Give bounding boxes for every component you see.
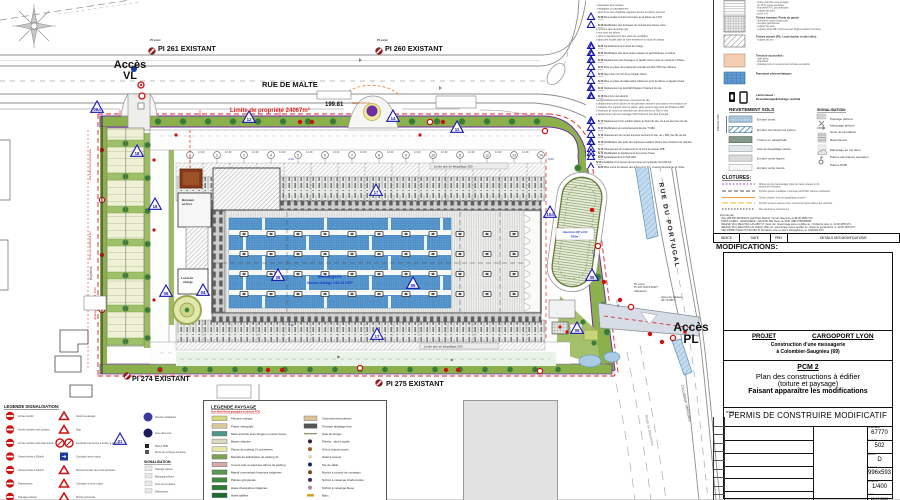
svg-text:N 29 Modification des fourreau: N 29 Modification des fourreaux du conce… [598, 24, 667, 27]
svg-text:Portillon et pieux sauterie te: Portillon et pieux sauterie tenue monume… [759, 202, 833, 205]
svg-text:12.30: 12.30 [225, 150, 232, 154]
svg-text:charge: charge [183, 280, 193, 284]
svg-text:12.30: 12.30 [468, 150, 475, 154]
svg-text:vertical très verticaux: vertical très verticaux [759, 186, 781, 189]
svg-text:Lim.6.00 recul construction: Lim.6.00 recul construction [88, 148, 92, 180]
svg-text:Ralentisseur: Ralentisseur [830, 138, 847, 142]
svg-text:N 05 Installation d'un auvent: N 05 Installation d'un auvent qui se tro… [596, 161, 672, 164]
svg-text:Panneaux photovoltaïques: Panneaux photovoltaïques [756, 72, 792, 76]
svg-text:Hôtel à insecte: Hôtel à insecte [322, 455, 342, 459]
svg-text:Borne de recharge électrique: Borne de recharge électrique [155, 451, 187, 454]
svg-text:12.30: 12.30 [441, 150, 448, 154]
svg-text:N 15 Abaissement de murets ann: N 15 Abaissement de murets annexes au No… [598, 134, 687, 137]
svg-text:N 07 Agrandissement du hall VR: N 07 Agrandissement du hall VRD [598, 156, 636, 159]
svg-text:Toiture auvent (PS, Local dock: Toiture auvent (PS, Local docker et abri… [756, 35, 818, 39]
svg-text:5: 5 [297, 154, 299, 158]
svg-text:- étanchéité PVC gris anthraci: - étanchéité PVC gris anthracite [756, 7, 789, 10]
svg-text:12.30: 12.30 [387, 150, 394, 154]
svg-text:rétention EP et EI: rétention EP et EI [563, 230, 588, 234]
svg-text:14: 14 [539, 154, 543, 158]
svg-text:Vitesse limitée à 30km/h: Vitesse limitée à 30km/h [18, 456, 45, 459]
svg-text:Enrobé voirie lourde: Enrobé voirie lourde [757, 166, 785, 170]
svg-text:Passage piétons: Passage piétons [830, 117, 853, 121]
svg-text:08: 08 [276, 275, 281, 280]
svg-text:05: 05 [411, 283, 416, 288]
svg-text:Clôture de type barreaudage ri: Clôture de type barreaudage rigide de mé… [759, 183, 820, 186]
svg-text:06: 06 [164, 291, 169, 296]
svg-text:N 23 Mise en place de balancel: N 23 Mise en place de balancelles inféri… [598, 80, 684, 83]
svg-text:N 10 Changement du revêtement: N 10 Changement du revêtement de la Cour… [598, 148, 665, 151]
svg-text:ESPACE VRD: ESPACE VRD [716, 114, 720, 131]
svg-text:Route de Marennes: Route de Marennes [644, 414, 655, 446]
svg-text:05: 05 [590, 275, 595, 280]
svg-text:4.10: 4.10 [288, 323, 294, 327]
svg-text:17: 17 [374, 190, 379, 195]
svg-text:- de 40 de pente membrane: - de 40 de pente membrane [756, 4, 785, 7]
svg-text:Terrasse platelage bois: Terrasse platelage bois [322, 424, 352, 428]
svg-text:Nichoir à colonie de moineaux: Nichoir à colonie de moineaux [322, 471, 361, 475]
svg-text:SECURISATION: SECURISATION [352, 102, 370, 105]
svg-text:Gîte à chauve-souris: Gîte à chauve-souris [322, 447, 349, 451]
svg-text:en R+1: en R+1 [182, 202, 192, 206]
svg-text:Terrasse accessible :: Terrasse accessible : [756, 54, 784, 58]
svg-text:Arrivée interdit: Arrivée interdit [18, 415, 34, 418]
svg-text:13: 13 [512, 154, 516, 158]
svg-text:12.30: 12.30 [522, 150, 529, 154]
svg-text:783m³: 783m³ [571, 235, 580, 239]
svg-text:10a: 10a [546, 212, 554, 217]
svg-text:12.30: 12.30 [198, 150, 205, 154]
svg-text:- platelage bois en recouvreme: - platelage bois en recouvrement terrass… [756, 63, 810, 66]
svg-text:Arrivée interdite sauf poids l: Arrivée interdite sauf poids lourds [18, 442, 54, 445]
svg-text:12.30: 12.30 [495, 150, 502, 154]
svg-text:N 22 Ajout d'un mur CF 2h en f: N 22 Ajout d'un mur CF 2h en façade Oues… [598, 73, 647, 76]
svg-text:4.10: 4.10 [288, 157, 294, 161]
svg-text:Circulation sens unique: Circulation sens unique [76, 456, 102, 459]
svg-text:- support bac acier: - support bac acier [756, 25, 775, 28]
svg-text:CLOTURES:: CLOTURES: [722, 175, 752, 181]
svg-text:Interdiction de tourner à droi: Interdiction de tourner à droite / à gau… [76, 442, 120, 445]
svg-text:SIGNALISATION:: SIGNALISATION: [144, 460, 171, 464]
svg-text:Trottoir en u//asphalte: Trottoir en u//asphalte [757, 138, 787, 142]
svg-text:Toiture bureaux, Poste de gard: Toiture bureaux, Poste de garde: [756, 16, 800, 20]
svg-text:Places PMR: Places PMR [830, 163, 848, 167]
svg-text:Ralentisseurs: Ralentisseurs [18, 483, 33, 486]
svg-text:N 27 Mise en place de la désse: N 27 Mise en place de la désserte Incend… [598, 66, 677, 69]
svg-text:Portillon piétons métallique /: Portillon piétons métallique / tournique… [759, 190, 831, 193]
svg-text:Prairie mésophile: Prairie mésophile [231, 424, 254, 428]
svg-text:Circulation à sens unique: Circulation à sens unique [76, 483, 104, 486]
svg-text:d ajout des modifs dans la zo: d ajout des modifs dans la zone extérieu… [596, 39, 665, 42]
svg-text:11: 11 [455, 127, 460, 132]
svg-text:Bassin étanche: Bassin étanche [231, 440, 251, 444]
svg-text:12.30: 12.30 [333, 150, 340, 154]
svg-text:Direction obligatoire: Direction obligatoire [155, 416, 177, 419]
svg-text:Marquage piétons: Marquage piétons [830, 124, 855, 128]
svg-text:Zone non aedificandi 4m: Zone non aedificandi 4m [88, 232, 92, 260]
svg-text:Remboursement de la voie prior: Remboursement de la voie prioritaire [76, 469, 116, 472]
svg-text:- toiture étanchée auto-protég: - toiture étanchée auto-protégée [756, 1, 790, 4]
svg-text:Clôture chantier et kit de sig: Clôture chantier et kit de signalétique … [759, 197, 806, 200]
svg-text:- support bac acier: - support bac acier [756, 10, 775, 13]
svg-text:Cédez-le-passage: Cédez-le-passage [76, 415, 96, 418]
svg-text:(voir détail Notice paysagère: (voir détail Notice paysagère en annexe … [211, 411, 260, 414]
svg-text:REVETEMENT SOLS: REVETEMENT SOLS [729, 107, 774, 112]
svg-text:Pierrier : abri à reptile: Pierrier : abri à reptile [322, 440, 350, 444]
svg-text:9.00: 9.00 [548, 157, 554, 161]
svg-text:- étanchéité: - étanchéité [756, 60, 769, 63]
svg-text:- de lestés gravillonnés: - de lestés gravillonnés [756, 22, 780, 25]
svg-text:2: 2 [216, 154, 218, 158]
svg-text:Haie de berges: Haie de berges [322, 432, 342, 436]
svg-text:17: 17 [375, 334, 380, 339]
svg-text:Haies taillées: Haies taillées [231, 494, 249, 498]
svg-text:12.30: 12.30 [279, 150, 286, 154]
svg-text:Places électriques équipées: Places électriques équipées [830, 155, 869, 159]
svg-text:Massif ornemental d'espèces in: Massif ornemental d'espèces indigènes [231, 471, 282, 475]
svg-text:Massifs de délimitation du par: Massifs de délimitation du parking VL [231, 455, 279, 459]
svg-text:LEGENDE SIGNALISATION:: LEGENDE SIGNALISATION: [4, 404, 59, 409]
svg-text:14: 14 [391, 116, 396, 121]
svg-text:12.30: 12.30 [360, 150, 367, 154]
svg-text:Nichoir à mésange charbonnière: Nichoir à mésange charbonnière [322, 478, 364, 482]
svg-text:Sens de circulation: Sens de circulation [830, 130, 856, 134]
svg-text:Cheminements piétons: Cheminements piétons [322, 417, 352, 421]
svg-text:Mare arrondie avec berges en p: Mare arrondie avec berges en pente douce [231, 432, 287, 436]
svg-text:12.30: 12.30 [414, 150, 421, 154]
svg-text:Priorité ponctuelle: Priorité ponctuelle [76, 496, 96, 499]
svg-text:12: 12 [247, 117, 252, 122]
svg-text:9: 9 [405, 154, 407, 158]
svg-text:06a: 06a [93, 107, 101, 112]
svg-text:N 24 Agrandissement du local d: N 24 Agrandissement du local de charge [598, 45, 644, 48]
svg-text:Arrivée interdite sauf cyclist: Arrivée interdite sauf cyclistes [18, 429, 50, 432]
svg-text:Pelouse rustique: Pelouse rustique [231, 417, 253, 421]
svg-text:09: 09 [575, 328, 580, 333]
svg-text:Marquage piétons: Marquage piétons [155, 476, 175, 479]
svg-text:Aires dans tous: Aires dans tous [155, 432, 172, 435]
svg-text:60 places: 60 places [89, 266, 93, 280]
svg-text:N 14 Modification de raccordem: N 14 Modification de raccordements direc… [598, 127, 655, 130]
svg-text:N 17 Déplacement d'un portillo: N 17 Déplacement d'un portillon piéton a… [598, 120, 688, 123]
svg-text:Nichoir à mésange bleue: Nichoir à mésange bleue [322, 486, 354, 490]
svg-text:Ralentisseur: Ralentisseur [155, 491, 168, 494]
svg-text:04: 04 [201, 290, 206, 295]
svg-text:N 11 Modification et déplaceme: N 11 Modification et déplacement des por… [598, 152, 655, 155]
svg-text:Tas de sable: Tas de sable [322, 463, 339, 467]
svg-text:Haies champêtres indigènes: Haies champêtres indigènes [231, 486, 268, 490]
svg-text:Niveau dallage 246.65 NGP: Niveau dallage 246.65 NGP [307, 281, 354, 285]
svg-text:7: 7 [351, 154, 353, 158]
svg-text:Circulation Véhicules: Circulation Véhicules [680, 384, 693, 422]
svg-text:8: 8 [378, 154, 380, 158]
svg-text:12.30: 12.30 [252, 150, 259, 154]
svg-text:Banc: Banc [322, 494, 329, 498]
svg-text:SIGNALISATION:: SIGNALISATION: [817, 108, 846, 112]
svg-text:- dalle béton: - dalle béton [756, 57, 769, 60]
svg-text:- ajout d'une aire d'agitation: - ajout d'une aire d'agitation agricole … [596, 11, 666, 14]
svg-text:Messagerie: Messagerie [318, 274, 342, 279]
svg-text:Places PMR: Places PMR [155, 445, 168, 448]
svg-text:Stop: Stop [76, 429, 82, 432]
svg-text:6: 6 [324, 154, 326, 158]
svg-text:Passage piétons: Passage piétons [155, 468, 173, 471]
svg-text:Limite aire de béquillage 250: Limite aire de béquillage 250 [424, 345, 463, 349]
svg-text:Desenfumage/Eclairage zenithal: Desenfumage/Eclairage zenithal [756, 97, 800, 101]
svg-text:e déplacement du bus marelage: e déplacement du bus marelage d'EP l'élé… [596, 113, 669, 116]
svg-text:- supports isolés BE conformes: - supports isolés BE conformes avec Régl… [756, 28, 822, 31]
svg-text:18: 18 [135, 151, 140, 156]
svg-text:16: 16 [153, 204, 158, 209]
svg-text:4: 4 [270, 154, 272, 158]
svg-text:Vitesse limitée à 10km/h: Vitesse limitée à 10km/h [18, 469, 45, 472]
svg-text:Aire de béquillage piéton: Aire de béquillage piéton [757, 147, 791, 151]
svg-text:Marquage au sol déco: Marquage au sol déco [830, 148, 861, 152]
svg-text:Enrobé cheminement piéton: Enrobé cheminement piéton [757, 128, 796, 132]
svg-text:Enrobé voirie légère: Enrobé voirie légère [757, 156, 785, 160]
svg-text:LEGENDE PAYSAGE: LEGENDE PAYSAGE [211, 405, 256, 410]
svg-text:N 25 Modification des lanterne: N 25 Modification des lanterneaux poteau… [598, 52, 676, 55]
svg-text:Passages piétons: Passages piétons [18, 496, 38, 499]
svg-text:Mur anti-bruit et enrochement: Mur anti-bruit et enrochement [759, 208, 789, 211]
svg-text:N 18 Mes Cour des abords :: N 18 Mes Cour des abords : [598, 95, 630, 98]
svg-text:12.30: 12.30 [306, 150, 313, 154]
svg-text:Plantes grimpantes: Plantes grimpantes [231, 478, 256, 482]
svg-text:N 21 Déplacement de la EU/EV/S: N 21 Déplacement de la EU/EV/Séparer l'i… [598, 87, 662, 90]
svg-text:- étanchéité courte multicouch: - étanchéité courte multicouche [756, 19, 789, 22]
svg-text:N 13 Modification des ports de: N 13 Modification des ports des panneaux… [598, 141, 692, 144]
svg-text:Limite aire de béquillage 250: Limite aire de béquillage 250 [434, 165, 473, 169]
svg-text:- support bac sec: - support bac sec [756, 38, 774, 41]
svg-text:12: 12 [485, 154, 489, 158]
svg-text:Enrobé voirie: Enrobé voirie [757, 117, 776, 121]
svg-text:10: 10 [431, 154, 435, 158]
svg-text:Places de parking VL enherbées: Places de parking VL enherbées [231, 447, 273, 451]
svg-text:Couvre-sols au pied des arbres: Couvre-sols au pied des arbres du parkin… [231, 463, 286, 467]
svg-text:11: 11 [458, 154, 462, 158]
svg-text:3: 3 [243, 154, 245, 158]
svg-text:Sens de circulation: Sens de circulation [155, 483, 176, 486]
svg-text:N 28 Renouvellement des fourre: N 28 Renouvellement des fourreaux de la … [598, 16, 662, 19]
svg-text:N 26 Déplacement des bossages: N 26 Déplacement des bossages en façade … [598, 59, 685, 62]
